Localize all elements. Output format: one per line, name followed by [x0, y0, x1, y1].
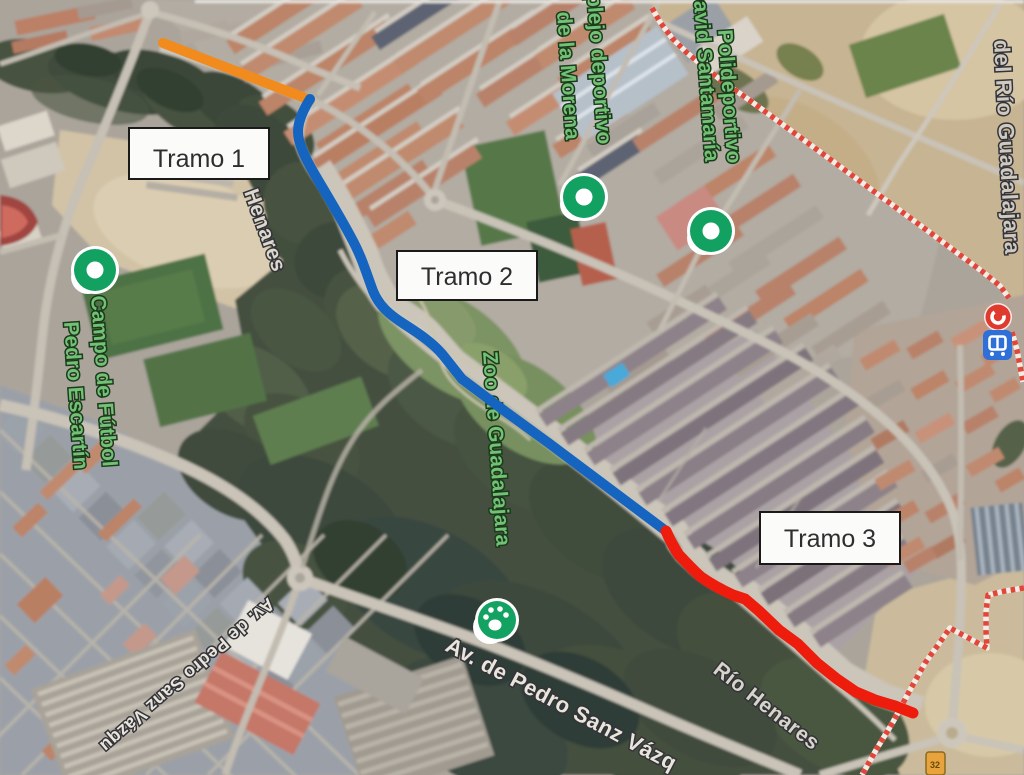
svg-text:32: 32 — [930, 760, 940, 770]
svg-text:Tramo 1: Tramo 1 — [153, 145, 245, 173]
svg-text:Tramo 2: Tramo 2 — [421, 263, 513, 291]
svg-text:Tramo 3: Tramo 3 — [784, 525, 876, 553]
